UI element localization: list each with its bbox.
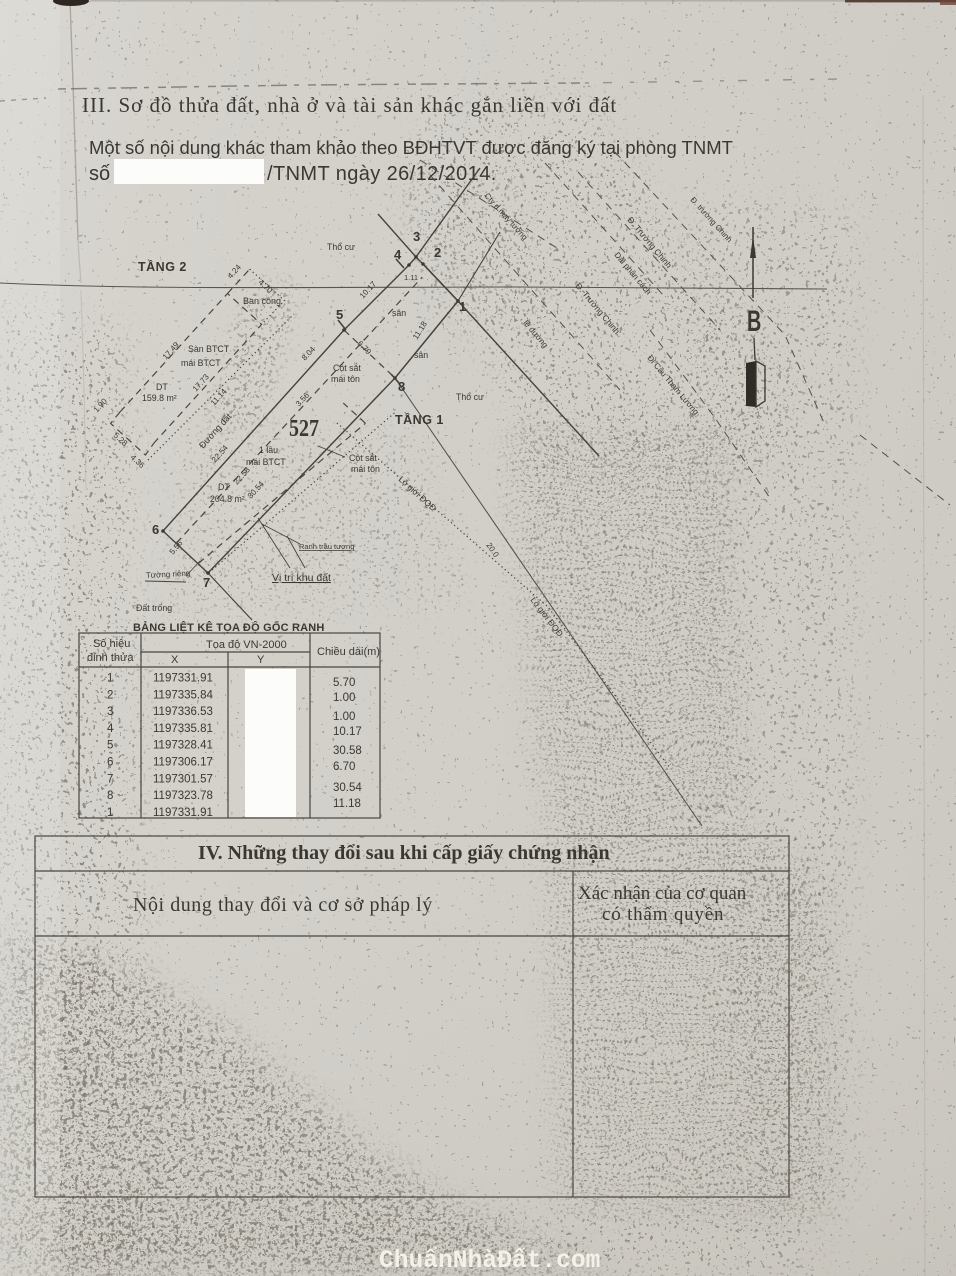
svg-text:DT: DT <box>156 382 168 392</box>
svg-text:Một số nội dung khác tham khảo: Một số nội dung khác tham khảo theo BĐHT… <box>89 137 733 158</box>
svg-text:6: 6 <box>152 522 159 537</box>
svg-text:1197331.91: 1197331.91 <box>153 807 213 819</box>
svg-text:Thổ cư: Thổ cư <box>456 392 484 402</box>
svg-text:1197301.57: 1197301.57 <box>153 773 213 785</box>
svg-text:Y: Y <box>257 654 265 666</box>
svg-text:B: B <box>747 305 761 338</box>
svg-text:Tọa độ VN-2000: Tọa độ VN-2000 <box>206 639 287 651</box>
svg-text:4: 4 <box>394 247 402 262</box>
svg-text:số: số <box>89 163 110 185</box>
svg-text:1.00: 1.00 <box>333 711 355 723</box>
svg-text:1197331.91: 1197331.91 <box>153 673 213 685</box>
svg-text:8: 8 <box>398 379 405 394</box>
svg-text:Thổ cư: Thổ cư <box>327 242 355 252</box>
svg-text:1197323.78: 1197323.78 <box>153 790 213 802</box>
svg-text:Ban công: Ban công <box>243 296 281 306</box>
svg-text:DT: DT <box>218 482 230 492</box>
svg-text:X: X <box>171 654 179 666</box>
svg-text:1: 1 <box>459 299 466 314</box>
svg-text:8: 8 <box>107 790 113 802</box>
svg-text:IV. Những thay đổi sau khi cấp: IV. Những thay đổi sau khi cấp giấy chứn… <box>198 842 610 864</box>
svg-text:đỉnh thửa: đỉnh thửa <box>87 652 134 664</box>
svg-text:5: 5 <box>107 740 113 752</box>
svg-text:Đất trống: Đất trống <box>136 603 172 613</box>
svg-text:1 lầu: 1 lầu <box>259 445 278 455</box>
svg-text:1197306.17: 1197306.17 <box>153 757 213 769</box>
svg-text:6: 6 <box>107 757 113 769</box>
svg-text:Số hiệu: Số hiệu <box>93 638 130 650</box>
svg-text:1197328.41: 1197328.41 <box>153 740 213 752</box>
svg-text:30.58: 30.58 <box>333 745 362 757</box>
svg-text:1: 1 <box>107 673 113 685</box>
svg-text:/TNMT ngày 26/12/2014.: /TNMT ngày 26/12/2014. <box>267 163 497 185</box>
svg-text:Vị trí khu đất: Vị trí khu đất <box>272 572 331 584</box>
svg-text:204.8 m²: 204.8 m² <box>210 494 245 504</box>
svg-text:sân: sân <box>414 350 428 360</box>
svg-text:7: 7 <box>107 773 113 785</box>
svg-text:4: 4 <box>107 723 114 735</box>
svg-text:sân: sân <box>392 308 406 318</box>
svg-text:5.70: 5.70 <box>333 677 355 689</box>
svg-text:10.17: 10.17 <box>333 726 362 738</box>
svg-text:Cột sắt: Cột sắt <box>349 453 377 463</box>
svg-text:3: 3 <box>413 229 420 244</box>
svg-text:527: 527 <box>289 416 319 442</box>
svg-text:11.18: 11.18 <box>333 798 361 810</box>
svg-text:Cột sắt: Cột sắt <box>333 363 361 373</box>
svg-text:30.54: 30.54 <box>333 782 362 794</box>
svg-text:1: 1 <box>107 807 113 819</box>
svg-text:III. Sơ đồ thửa đất, nhà ở và: III. Sơ đồ thửa đất, nhà ở và tài sản kh… <box>82 93 617 117</box>
svg-text:5: 5 <box>336 307 343 322</box>
svg-text:1.00: 1.00 <box>333 692 355 704</box>
svg-text:6.70: 6.70 <box>333 761 355 773</box>
svg-text:7: 7 <box>203 575 210 590</box>
svg-text:BẢNG LIỆT KÊ TỌA ĐỘ GỐC RANH: BẢNG LIỆT KÊ TỌA ĐỘ GỐC RANH <box>133 620 325 634</box>
svg-text:mái tôn: mái tôn <box>331 374 360 384</box>
svg-text:2: 2 <box>434 245 441 260</box>
svg-text:3: 3 <box>107 706 113 718</box>
svg-text:1197335.84: 1197335.84 <box>153 689 214 701</box>
svg-text:Chiều dài(m): Chiều dài(m) <box>317 646 380 658</box>
svg-text:Ranh trầu tương: Ranh trầu tương <box>299 542 354 551</box>
svg-text:159.8 m²: 159.8 m² <box>142 393 177 403</box>
svg-text:mái BTCT: mái BTCT <box>181 358 221 368</box>
svg-text:ChuẩnNhàĐất.com: ChuẩnNhàĐất.com <box>379 1247 600 1275</box>
svg-text:TẦNG 2: TẦNG 2 <box>138 259 187 274</box>
svg-text:mái BTCT: mái BTCT <box>246 457 286 467</box>
svg-text:mái tôn: mái tôn <box>351 464 380 474</box>
svg-text:1197336.53: 1197336.53 <box>153 706 213 718</box>
svg-text:1197335.81: 1197335.81 <box>153 723 213 735</box>
svg-text:TẦNG 1: TẦNG 1 <box>395 412 444 427</box>
svg-text:1.11: 1.11 <box>404 273 418 282</box>
svg-text:2: 2 <box>107 689 113 701</box>
svg-text:Sàn BTCT: Sàn BTCT <box>188 344 230 354</box>
